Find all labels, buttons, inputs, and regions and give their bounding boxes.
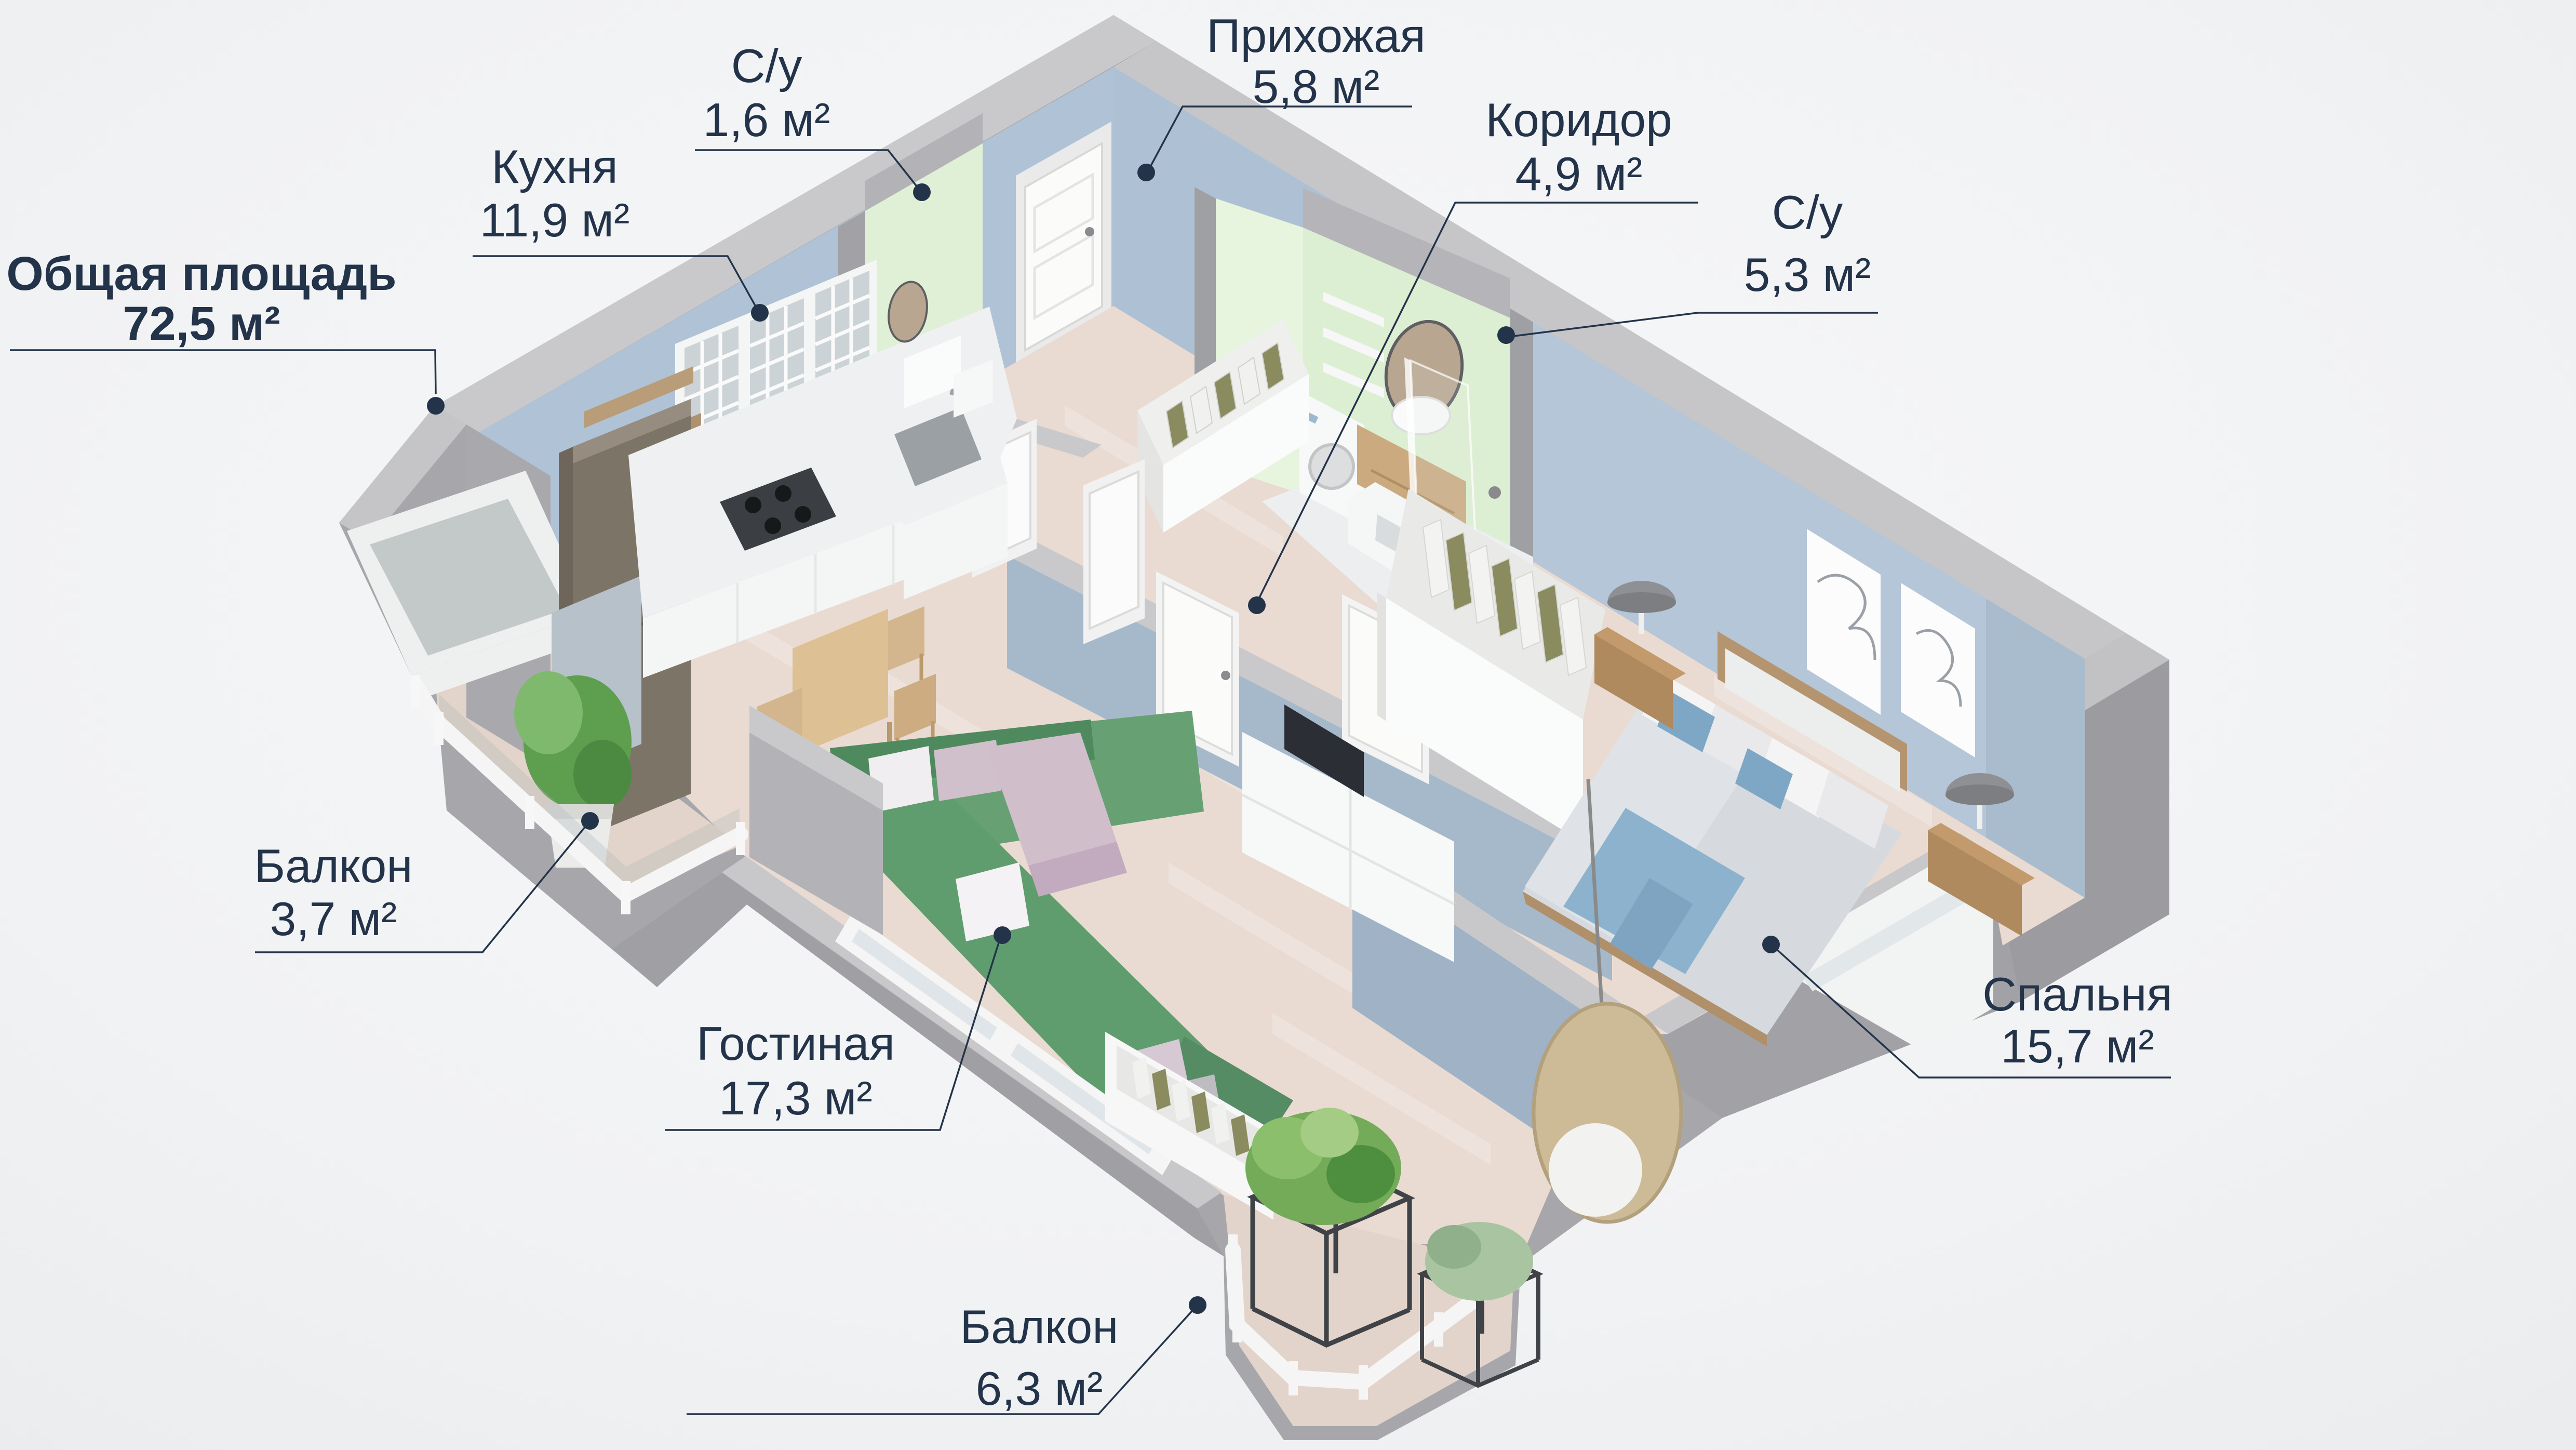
svg-text:Балкон3,7 м²: Балкон3,7 м² — [254, 840, 412, 946]
svg-text:Спальня15,7 м²: Спальня15,7 м² — [1982, 968, 2172, 1073]
